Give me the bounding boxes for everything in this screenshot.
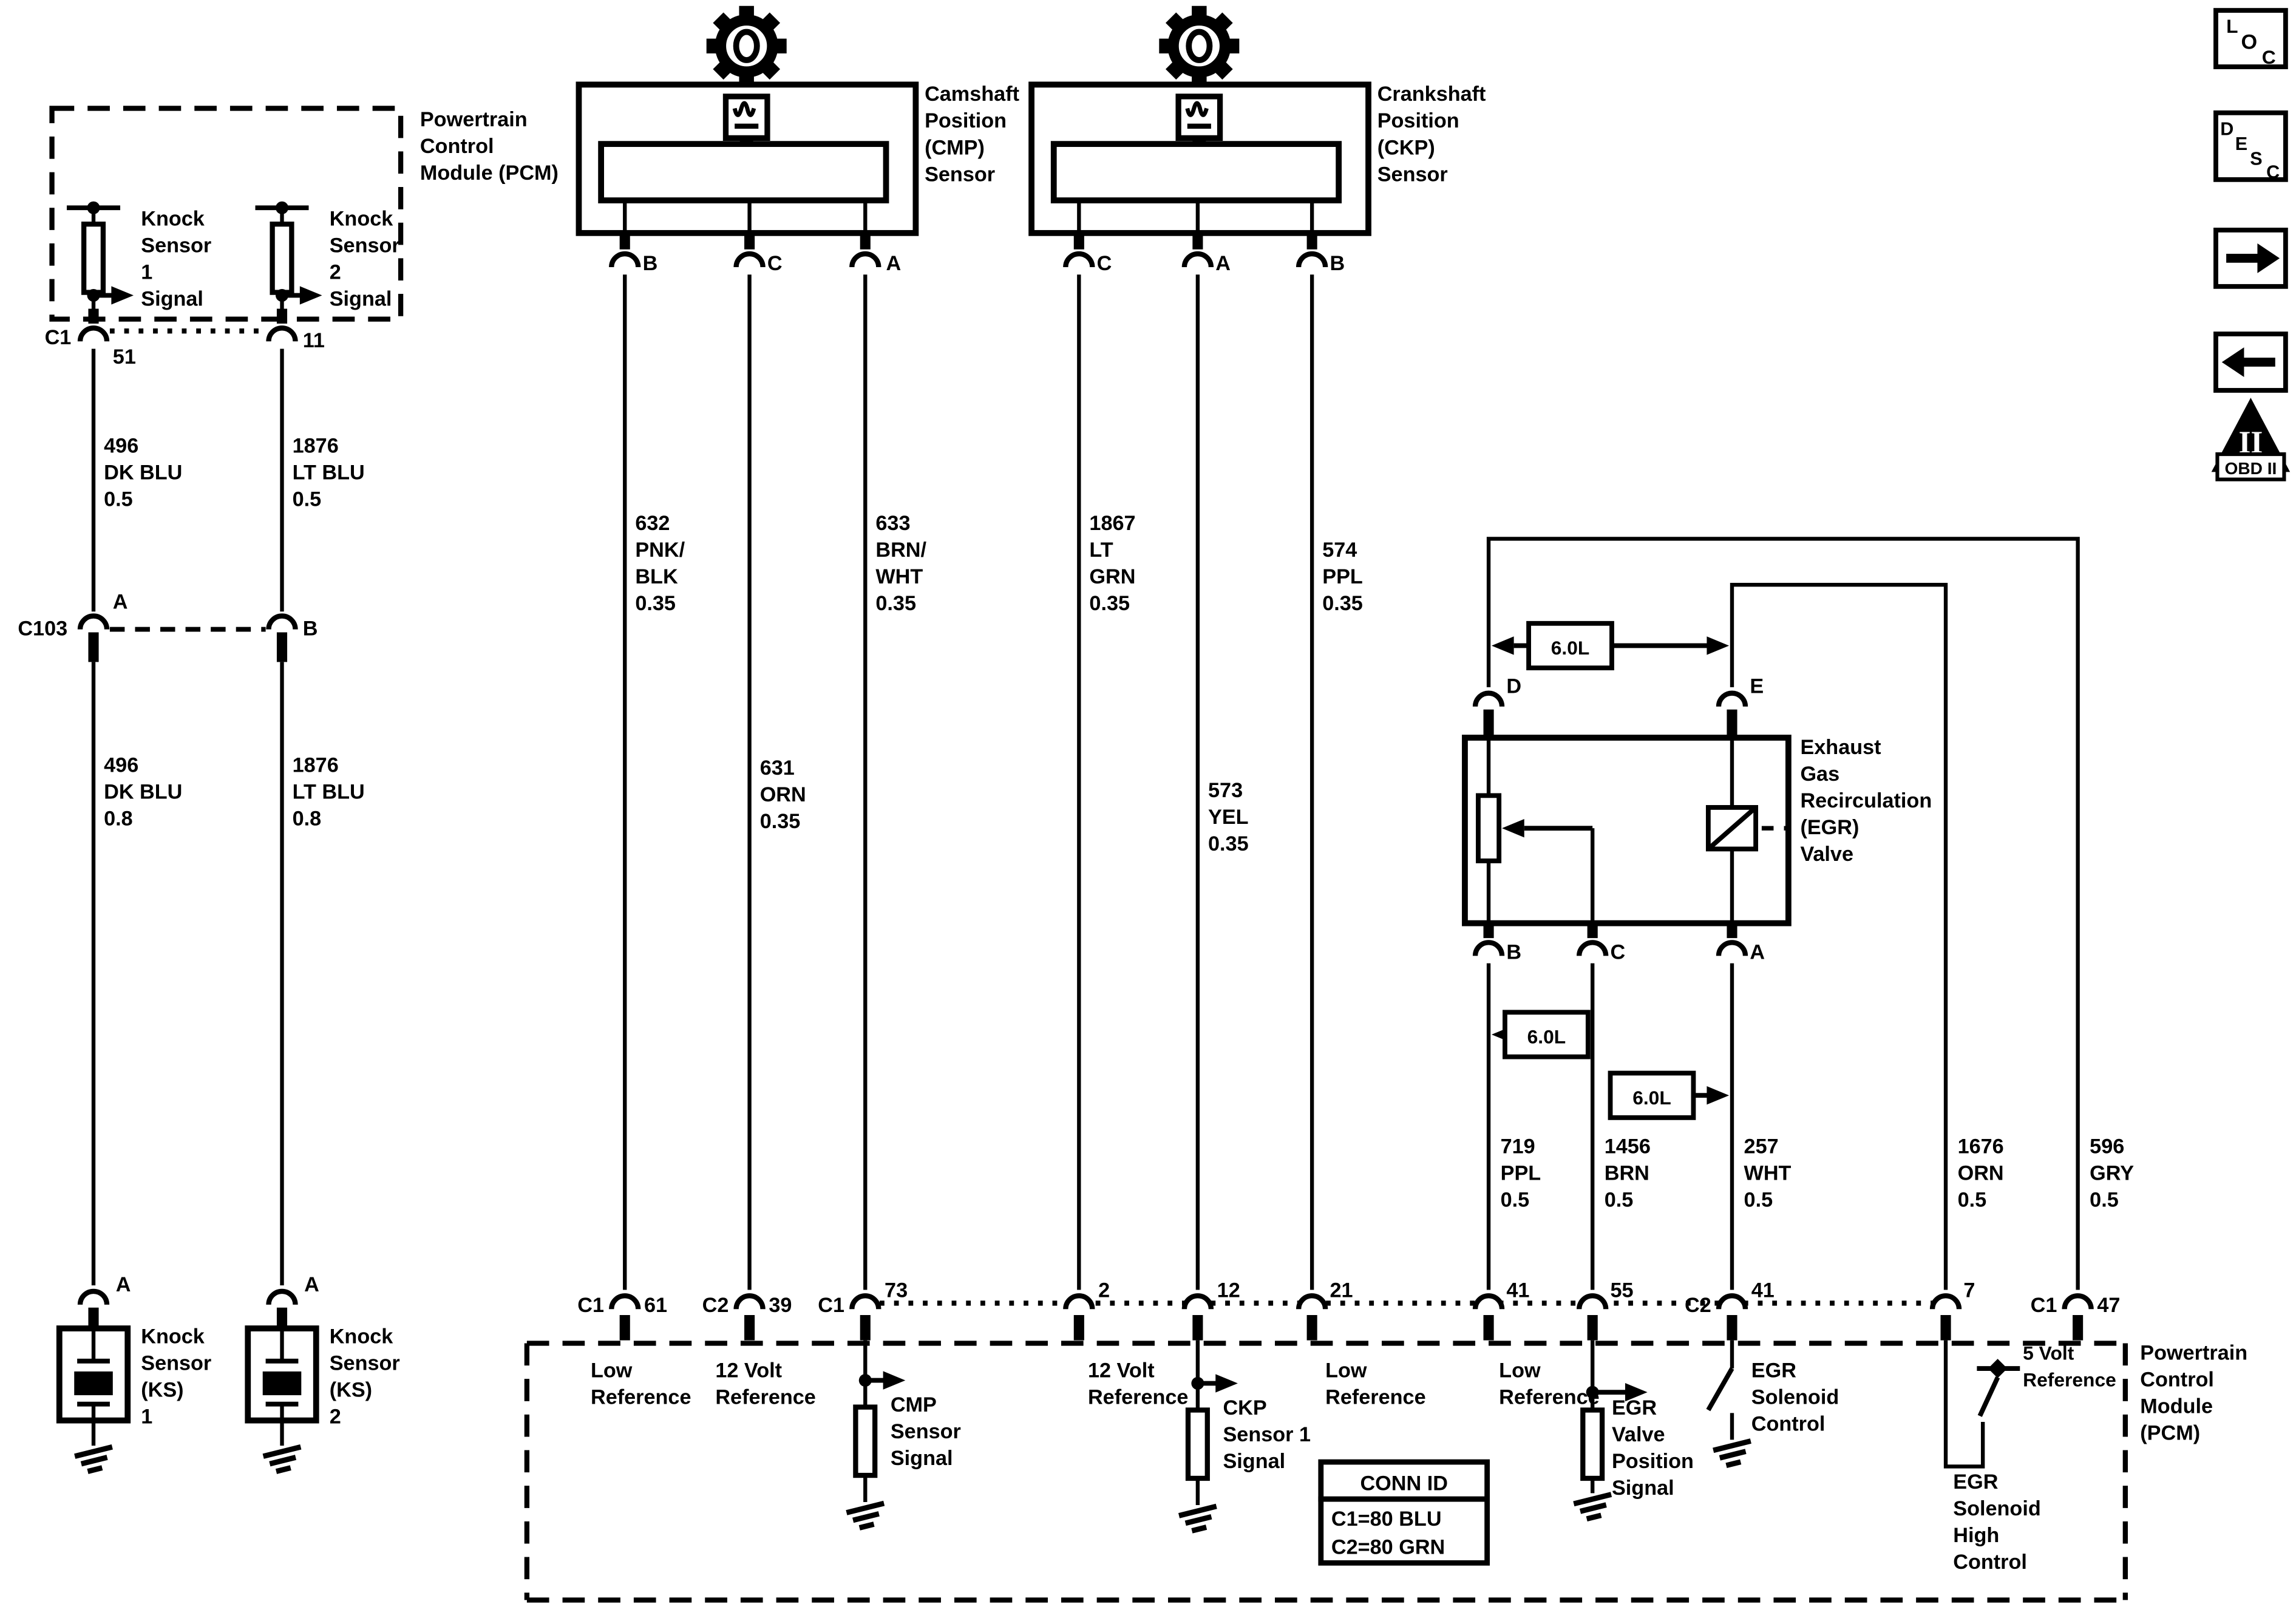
wire-label-632: 632	[635, 512, 670, 535]
connector-label: C2	[702, 1294, 729, 1317]
pin-letter: A	[113, 590, 128, 613]
pin-cmp-a	[852, 254, 878, 267]
pin-ckp-c	[1065, 254, 1092, 267]
wire-label-719: 0.5	[1501, 1189, 1530, 1212]
signal-arrow-icon	[1215, 1374, 1238, 1392]
pin-letter: C	[767, 252, 783, 275]
pcm-bottom-label: Powertrain	[2140, 1341, 2247, 1364]
wire-label-573: 0.35	[1208, 832, 1249, 855]
pin-c2-41	[1719, 1296, 1745, 1309]
fn-low-reference: Reference	[591, 1386, 691, 1409]
fn-low-reference: Reference	[1499, 1386, 1599, 1409]
pin-letter: E	[1750, 675, 1764, 698]
fn-egr-solenoid-ctrl: Solenoid	[1751, 1386, 1839, 1409]
engine-size-badge: 6.0L	[1527, 1026, 1566, 1048]
pin-cmp-b	[611, 254, 638, 267]
fn-egr-position: Signal	[1612, 1477, 1674, 1500]
knock-sensor-1: A Knock Sensor (KS) 1	[59, 1273, 211, 1474]
conn-id-row: C1=80 BLU	[1331, 1508, 1442, 1531]
pin-number: 41	[1751, 1279, 1775, 1302]
ks2-signal-label: Signal	[330, 288, 392, 311]
hall-sensor-icon	[1178, 97, 1220, 138]
fn-egr-position: Valve	[1612, 1423, 1665, 1446]
loc-letter: L	[2226, 15, 2238, 37]
fn-low-reference: Low	[1325, 1359, 1367, 1382]
fn-ckp-signal: CKP	[1223, 1396, 1266, 1419]
arrow-left-icon	[2222, 347, 2275, 377]
wire-label-496: 496	[104, 753, 138, 777]
ckp-title: (CKP)	[1377, 136, 1435, 159]
pin-ckp-a	[1184, 254, 1211, 267]
signal-arrow-icon	[883, 1371, 906, 1389]
egr-title: Valve	[1800, 843, 1853, 866]
wire-label-496: DK BLU	[104, 461, 182, 484]
desc-button[interactable]: D E S C	[2216, 113, 2286, 183]
wire-label-596: GRY	[2090, 1162, 2134, 1185]
pin-55	[1579, 1296, 1606, 1309]
fn-12v-reference: Reference	[1088, 1386, 1188, 1409]
pin-12	[1184, 1296, 1211, 1309]
wire-label-1456: 1456	[1605, 1135, 1651, 1158]
fn-egr-solenoid-ctrl: Control	[1751, 1413, 1826, 1436]
fn-cmp-signal: CMP	[891, 1393, 937, 1416]
loc-letter: O	[2241, 31, 2258, 54]
pin-number: 21	[1330, 1279, 1353, 1302]
wire-label-596: 596	[2090, 1135, 2124, 1158]
pin-ckp-b	[1299, 254, 1325, 267]
fn-ckp-signal: Sensor 1	[1223, 1423, 1311, 1446]
pcm-top-module: Powertrain Control Module (PCM) Knock Se…	[45, 108, 559, 369]
wire-label-1676: 0.5	[1958, 1189, 1987, 1212]
wiring-diagram: Powertrain Control Module (PCM) Knock Se…	[0, 0, 2296, 1618]
wiring-diagram-page: Powertrain Control Module (PCM) Knock Se…	[0, 0, 2296, 1618]
ks2-signal-label: 2	[330, 261, 341, 284]
pin-21	[1299, 1296, 1325, 1309]
wire-label-1876: 0.8	[293, 807, 322, 830]
egr-valve: 6.0L D E Exhaust Gas Recirculation (EGR)…	[1465, 539, 2134, 1290]
pin-letter: B	[1330, 252, 1345, 275]
wire-label-631: 631	[760, 756, 795, 780]
ks1-signal-label: Knock	[141, 208, 205, 231]
pin-number: 2	[1098, 1279, 1110, 1302]
conn-id-row: C2=80 GRN	[1331, 1536, 1445, 1559]
ks2-signal-label: Knock	[330, 208, 394, 231]
wire-label-573: 573	[1208, 779, 1243, 802]
connector-label: C1	[45, 326, 72, 349]
wire-label-631: 0.35	[760, 810, 801, 833]
ckp-title: Crankshaft	[1377, 83, 1486, 106]
loc-letter: C	[2262, 46, 2276, 68]
wire-label-1867: GRN	[1089, 565, 1135, 588]
pcm-bottom-label: Module	[2140, 1395, 2213, 1418]
pin-c103-a	[80, 616, 107, 630]
fn-egr-solenoid-high: Control	[1953, 1551, 2027, 1574]
fn-egr-solenoid-ctrl: EGR	[1751, 1359, 1796, 1382]
pin-ks2-a	[269, 1291, 296, 1305]
ground-icon	[846, 1503, 888, 1530]
ground-icon	[1713, 1441, 1755, 1467]
desc-letter: D	[2220, 118, 2233, 139]
pin-letter: B	[643, 252, 658, 275]
pin-letter: A	[304, 1273, 319, 1296]
ks2-label: Knock	[330, 1325, 394, 1348]
ks1-label: Sensor	[141, 1351, 211, 1375]
egr-title: Exhaust	[1800, 736, 1881, 759]
pin-egr-a	[1719, 942, 1745, 956]
pin-number: 41	[1506, 1279, 1529, 1302]
egr-title: (EGR)	[1800, 816, 1859, 839]
pin-ks1-a	[80, 1291, 107, 1305]
ks1-label: Knock	[141, 1325, 205, 1348]
wire-label-596: 0.5	[2090, 1189, 2119, 1212]
cmp-title: Camshaft	[925, 83, 1019, 106]
fn-12v-reference: Reference	[715, 1386, 815, 1409]
wire-label-719: PPL	[1501, 1162, 1541, 1185]
conn-id-table: CONN ID C1=80 BLU C2=80 GRN	[1321, 1462, 1487, 1563]
wire-label-574: 0.35	[1322, 592, 1363, 615]
wire-label-496: 496	[104, 435, 138, 458]
desc-letter: E	[2235, 134, 2247, 154]
switch-blade	[1708, 1368, 1732, 1410]
ks2-signal-label: Sensor	[330, 234, 400, 257]
ckp-sensor: Crankshaft Position (CKP) Sensor C A B 1…	[1031, 6, 1486, 1290]
ks1-label: (KS)	[141, 1378, 183, 1401]
ground-icon	[75, 1447, 117, 1474]
pcm-bottom-label: Control	[2140, 1368, 2214, 1391]
pin-egr-d	[1475, 693, 1502, 707]
pin-c1-61	[611, 1296, 638, 1309]
pin-number: 7	[1963, 1279, 1975, 1302]
wire-label-1876: 1876	[293, 435, 339, 458]
loc-button[interactable]: L O C	[2216, 10, 2286, 68]
wire-label-1676: ORN	[1958, 1162, 2004, 1185]
obd2-badge: II OBD II	[2212, 398, 2291, 479]
wire-label-496: 0.5	[104, 488, 133, 511]
ks2-label: (KS)	[330, 1378, 372, 1401]
cmp-title: (CMP)	[925, 136, 985, 159]
fn-ckp-signal: Signal	[1223, 1450, 1285, 1473]
fn-5v-reference: Reference	[2023, 1368, 2116, 1390]
wire-label-633: WHT	[875, 565, 923, 588]
hall-sensor-icon	[725, 97, 767, 138]
pin-41	[1475, 1296, 1502, 1309]
fn-12v-reference: 12 Volt	[715, 1359, 782, 1382]
wire-label-496: DK BLU	[104, 780, 182, 803]
pin-number: 55	[1611, 1279, 1634, 1302]
wire-label-574: PPL	[1322, 565, 1363, 588]
pin-letter: A	[1750, 940, 1765, 964]
ks1-signal-label: 1	[141, 261, 152, 284]
ground-icon	[263, 1447, 305, 1474]
pin-c1-11	[269, 328, 296, 341]
connector-label: C1	[2031, 1294, 2057, 1317]
ckp-title: Sensor	[1377, 163, 1448, 186]
obd2-label: OBD II	[2224, 459, 2277, 478]
pin-letter: A	[886, 252, 902, 275]
wire-label-1876: 0.5	[293, 488, 322, 511]
wire-label-574: 574	[1322, 539, 1357, 562]
pin-number: 11	[303, 329, 325, 352]
arrow-right-icon	[1707, 636, 1729, 654]
wire-label-632: BLK	[635, 565, 678, 588]
c103-label: C103	[18, 617, 67, 640]
wire-label-257: WHT	[1744, 1162, 1792, 1185]
wire-label-1876: LT BLU	[293, 780, 365, 803]
gear-icon	[707, 6, 787, 86]
fn-cmp-signal: Sensor	[891, 1420, 961, 1443]
fn-egr-solenoid-high: EGR	[1953, 1470, 1998, 1494]
switch-contact-icon	[1988, 1359, 2008, 1378]
wire-label-573: YEL	[1208, 806, 1249, 829]
fn-cmp-signal: Signal	[891, 1447, 953, 1470]
pin-egr-c	[1579, 942, 1606, 956]
pin-2	[1065, 1296, 1092, 1309]
pin-egr-b	[1475, 942, 1502, 956]
pin-number: 47	[2097, 1294, 2120, 1317]
knock-sensor-2: A Knock Sensor (KS) 2	[248, 1273, 399, 1474]
wire-label-632: 0.35	[635, 592, 676, 615]
pin-number: 61	[644, 1294, 667, 1317]
wire-label-632: PNK/	[635, 539, 685, 562]
engine-size-badge: 6.0L	[1551, 637, 1590, 659]
pin-letter: A	[116, 1273, 131, 1296]
pin-letter: C	[1097, 252, 1112, 275]
pin-c103-b	[269, 616, 296, 630]
position-sensor-resistor	[1478, 795, 1499, 861]
signal-arrow-icon	[300, 286, 322, 304]
ks2-label: 2	[330, 1405, 341, 1428]
cmp-title: Sensor	[925, 163, 995, 186]
switch-blade	[1980, 1378, 1997, 1416]
cmp-title: Position	[925, 109, 1007, 132]
connector-label: C2	[1685, 1294, 1711, 1317]
ckp-title: Position	[1377, 109, 1459, 132]
pin-c1-47	[2065, 1296, 2091, 1309]
ground-icon	[1574, 1494, 1615, 1521]
pcm-top-label: Powertrain	[420, 108, 528, 131]
wire-label-1456: 0.5	[1605, 1189, 1634, 1212]
next-button[interactable]	[2216, 230, 2286, 287]
desc-letter: C	[2266, 161, 2280, 182]
egr-title: Recirculation	[1800, 789, 1932, 812]
connector-label: C1	[577, 1294, 604, 1317]
wire-label-1456: BRN	[1605, 1162, 1649, 1185]
pin-letter: C	[1611, 940, 1626, 964]
signal-arrow-icon	[111, 286, 134, 304]
wire-label-1676: 1676	[1958, 1135, 2004, 1158]
margin-icons: L O C D E S C II OBD II	[2212, 10, 2291, 480]
pin-letter: D	[1506, 675, 1521, 698]
fn-low-reference: Low	[1499, 1359, 1541, 1382]
wire-label-257: 0.5	[1744, 1189, 1773, 1212]
pcm-bottom-module: Powertrain Control Module (PCM) C1 61 C2…	[527, 1279, 2247, 1600]
wire-label-496: 0.8	[104, 807, 133, 830]
pin-letter: B	[303, 617, 318, 640]
wire-label-1876: LT BLU	[293, 461, 365, 484]
arrow-left-icon	[1492, 636, 1514, 654]
wire-label-1876: 1876	[293, 753, 339, 777]
wire-label-631: ORN	[760, 783, 806, 806]
wire-label-1867: 1867	[1089, 512, 1135, 535]
wire-label-1867: LT	[1089, 539, 1113, 562]
pin-number: 73	[885, 1279, 908, 1302]
ks1-label: 1	[141, 1405, 152, 1428]
pin-7	[1932, 1296, 1959, 1309]
wire-label-1867: 0.35	[1089, 592, 1130, 615]
cmp-sensor: Camshaft Position (CMP) Sensor B C A 632…	[579, 6, 1019, 1290]
ks1-signal-label: Signal	[141, 288, 203, 311]
pin-c1-51	[80, 328, 107, 341]
engine-size-badge: 6.0L	[1632, 1087, 1671, 1109]
ks2-label: Sensor	[330, 1351, 400, 1375]
fn-low-reference: Reference	[1325, 1386, 1425, 1409]
fn-egr-solenoid-high: Solenoid	[1953, 1497, 2040, 1520]
fn-egr-position: Position	[1612, 1450, 1694, 1473]
egr-title: Gas	[1800, 763, 1839, 786]
fn-egr-position: EGR	[1612, 1396, 1657, 1419]
pin-letter: B	[1506, 940, 1521, 964]
pin-c1-73	[852, 1296, 878, 1309]
wiper-arrow-icon	[1502, 819, 1524, 837]
pin-c2-39	[736, 1296, 763, 1309]
gear-icon	[1159, 6, 1239, 86]
connector-label: C1	[818, 1294, 844, 1317]
desc-letter: S	[2250, 148, 2262, 169]
pcm-top-label: Module (PCM)	[420, 161, 559, 185]
wire-label-633: BRN/	[875, 539, 926, 562]
pcm-bottom-label: (PCM)	[2140, 1421, 2200, 1444]
fn-low-reference: Low	[591, 1359, 633, 1382]
fn-5v-reference: 5 Volt	[2023, 1342, 2074, 1364]
wire-label-633: 633	[875, 512, 910, 535]
pcm-top-label: Control	[420, 135, 494, 158]
conn-id-header: CONN ID	[1360, 1472, 1447, 1495]
back-button[interactable]	[2216, 334, 2286, 390]
arrow-right-icon	[2226, 243, 2280, 273]
pin-egr-e	[1719, 693, 1745, 707]
fn-egr-solenoid-high: High	[1953, 1524, 1999, 1547]
pin-number: 12	[1217, 1279, 1240, 1302]
ks1-signal-label: Sensor	[141, 234, 211, 257]
pin-number: 51	[113, 345, 136, 369]
pin-cmp-c	[736, 254, 763, 267]
fn-12v-reference: 12 Volt	[1088, 1359, 1155, 1382]
wire-label-257: 257	[1744, 1135, 1779, 1158]
wire-label-633: 0.35	[875, 592, 916, 615]
pin-letter: A	[1215, 252, 1231, 275]
pin-number: 39	[769, 1294, 792, 1317]
wire-label-719: 719	[1501, 1135, 1535, 1158]
arrow-right-icon	[1707, 1086, 1729, 1104]
ground-icon	[1179, 1506, 1221, 1533]
left-harness: 496 DK BLU 0.5 1876 LT BLU 0.5 C103 A B …	[18, 349, 364, 1286]
